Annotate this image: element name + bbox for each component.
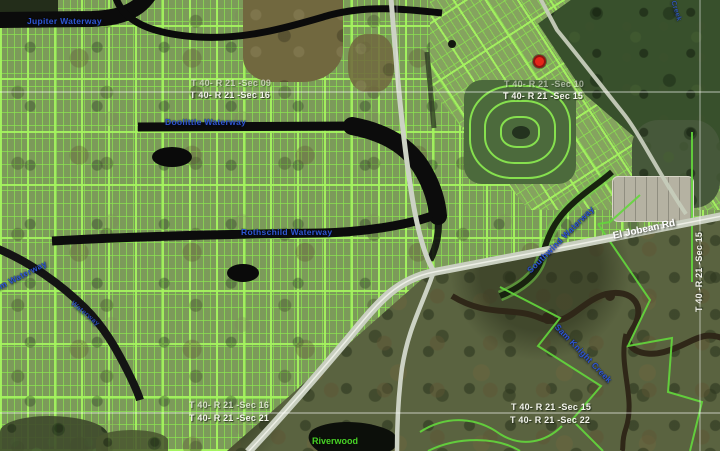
section-label-sec22: T 40- R 21 -Sec 22 [510, 415, 590, 425]
section-label-sec15-bottom: T 40- R 21 -Sec 15 [511, 402, 591, 412]
section-label-sec09: T 40- R 21 -Sec 09 [191, 78, 271, 88]
waterway-label-doolittle: Doolittle Waterway [165, 117, 246, 127]
waterway-label-rothschild: Rothschild Waterway [241, 227, 332, 237]
section-label-sec16-bottom: T 40- R 21 -Sec 16 [189, 400, 269, 410]
map-vector-overlay [0, 0, 720, 451]
section-label-sec15-top: T 40- R 21 -Sec 15 [503, 91, 583, 101]
community-label-riverwood: Riverwood [312, 436, 358, 446]
section-label-sec21: T 40- R 21 -Sec 21 [189, 413, 269, 423]
section-label-sec15-vertical: T 40 -R 21 -Sec 15 [694, 232, 704, 312]
waterway-label-jupiter: Jupiter Waterway [27, 16, 102, 26]
selected-property-marker[interactable] [533, 55, 546, 68]
section-label-sec10: T 40- R 21 -Sec 10 [504, 79, 584, 89]
map-canvas[interactable]: Jupiter Waterway Doolittle Waterway Roth… [0, 0, 720, 451]
section-label-sec16-top: T 40- R 21 -Sec 16 [190, 90, 270, 100]
